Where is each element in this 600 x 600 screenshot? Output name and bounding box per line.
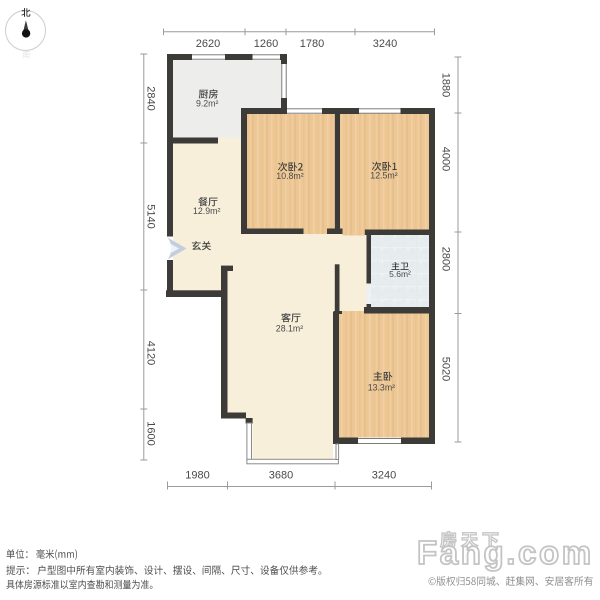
svg-text:12.9m²: 12.9m² [193,206,220,216]
svg-text:12.5m²: 12.5m² [370,171,397,181]
svg-text:Fang.com: Fang.com [417,534,594,571]
svg-text:10.8m²: 10.8m² [276,171,303,181]
svg-text:13.3m²: 13.3m² [368,382,395,392]
svg-text:3240: 3240 [373,38,397,50]
svg-text:2800: 2800 [440,247,452,271]
svg-text:4000: 4000 [440,147,452,171]
svg-text:5.6m²: 5.6m² [389,269,411,279]
svg-text:5140: 5140 [145,204,157,228]
svg-text:4120: 4120 [145,341,157,365]
svg-text:1980: 1980 [185,470,209,482]
svg-text:1880: 1880 [440,73,452,97]
svg-text:1600: 1600 [145,421,157,445]
svg-text:1780: 1780 [300,38,324,50]
svg-text:9.2m²: 9.2m² [196,98,219,108]
svg-text:28.1m²: 28.1m² [276,324,303,334]
svg-text:3240: 3240 [372,470,396,482]
svg-text:3680: 3680 [269,470,293,482]
svg-text:2620: 2620 [196,38,220,50]
svg-text:2840: 2840 [145,86,157,110]
svg-text:5020: 5020 [440,357,452,381]
svg-text:1260: 1260 [254,38,278,50]
